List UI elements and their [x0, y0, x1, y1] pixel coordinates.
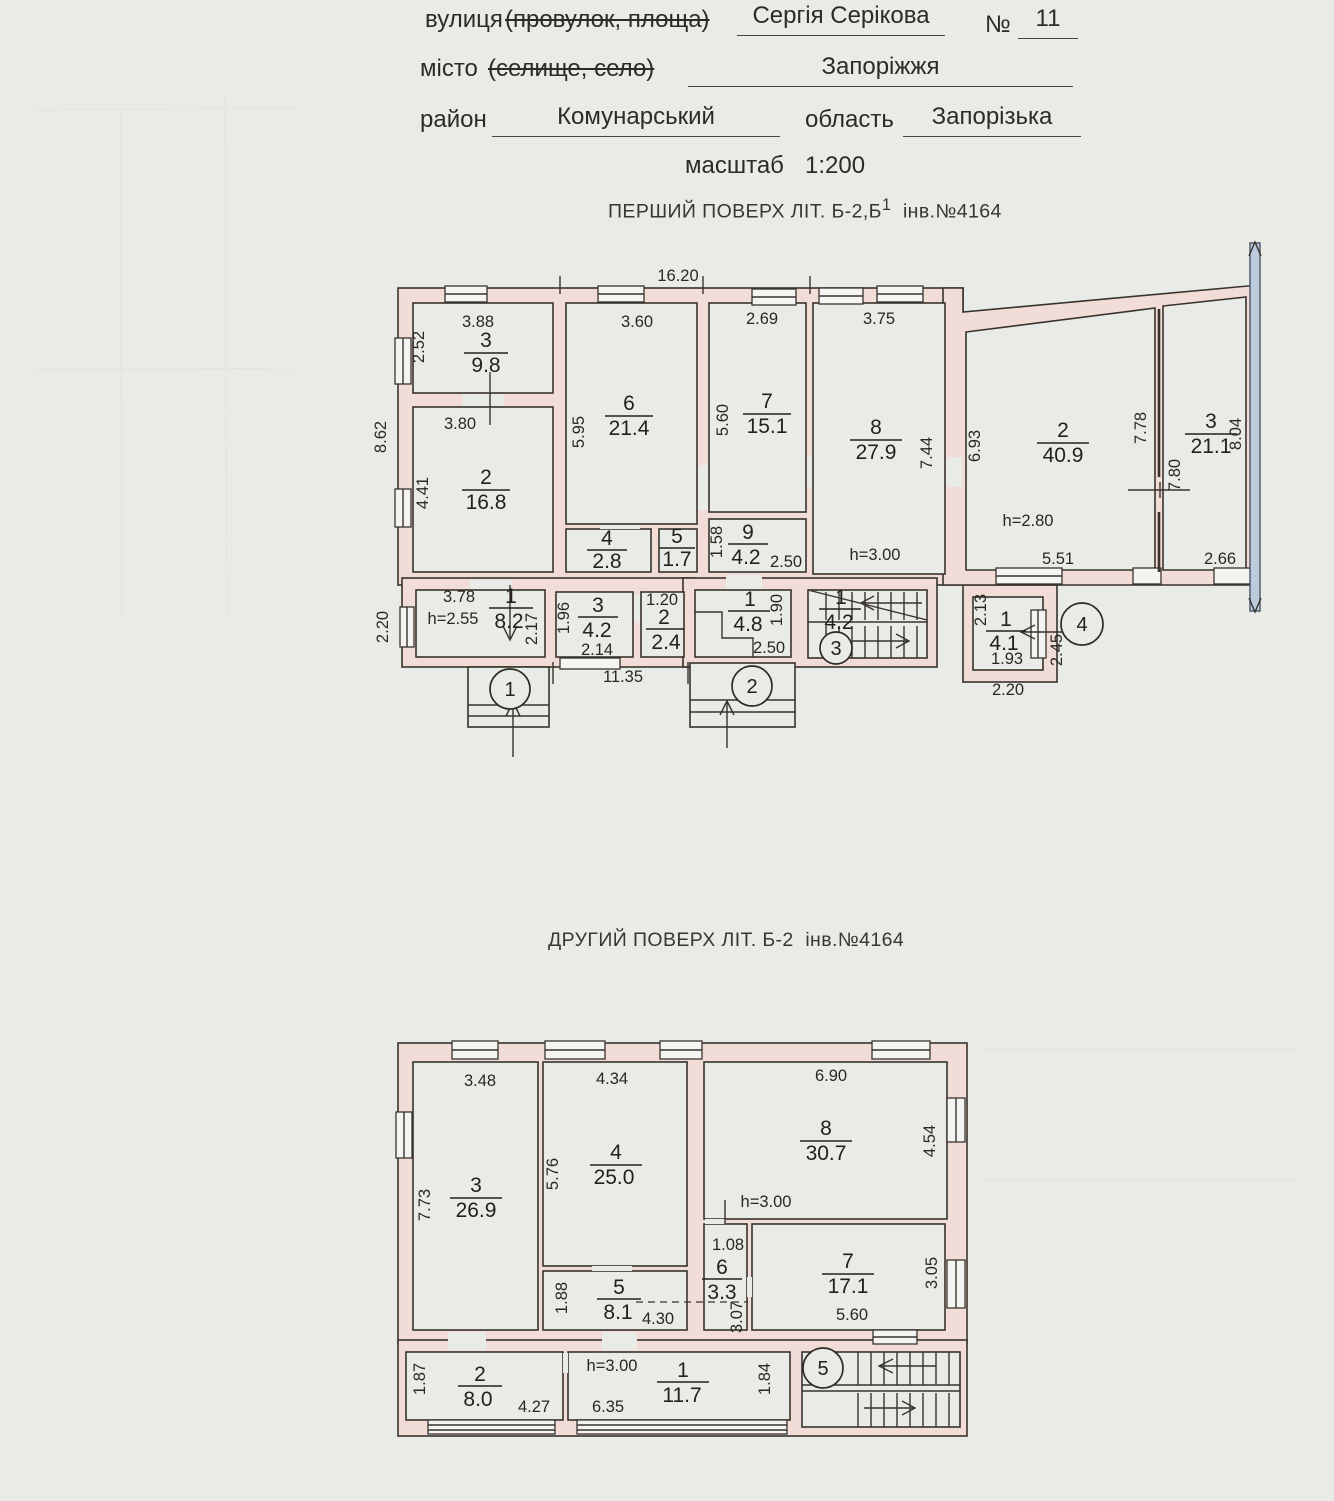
dim-label: 2.45: [1048, 634, 1066, 666]
room-number: 7: [842, 1250, 854, 1273]
floor1-plan: 1 2 3 4 3 9.8 2 16.8 6 21.4 4 2.8 5: [372, 242, 1261, 757]
room-number: 1: [677, 1359, 689, 1382]
room-number: 2: [658, 606, 670, 629]
room-number: 7: [761, 390, 773, 413]
scanned-floorplan-page: вулиця (провулок, площа) Сергія Серікова…: [0, 0, 1334, 1501]
room-area: 8.1: [603, 1301, 632, 1324]
dim-label: 5.60: [836, 1306, 868, 1324]
dim-label: 6.90: [815, 1067, 847, 1085]
room-area: 1.7: [662, 548, 691, 571]
room-area: 4.2: [582, 619, 611, 642]
height-label: h=2.80: [1003, 512, 1054, 530]
dim-label: 3.75: [863, 310, 895, 328]
room-number: 8: [820, 1117, 832, 1140]
dim-label: 11.35: [603, 668, 643, 686]
entrance-marker-1: 1: [504, 679, 515, 701]
height-label: h=2.55: [428, 610, 479, 628]
room-area: 17.1: [828, 1275, 869, 1298]
dim-label: 4.34: [596, 1070, 628, 1088]
dim-label: 3.05: [923, 1257, 941, 1289]
dim-label: 2.69: [746, 310, 778, 328]
room-area: 30.7: [806, 1142, 847, 1165]
room-number: 3: [592, 594, 604, 617]
room-area: 3.3: [707, 1281, 736, 1304]
dim-label: 3.60: [621, 313, 653, 331]
dim-label: 1.84: [756, 1363, 774, 1395]
dim-label: 2.50: [753, 639, 785, 657]
dim-label: 2.13: [972, 594, 990, 626]
dim-label: 1.90: [768, 594, 786, 626]
dim-label: 4.41: [414, 477, 432, 509]
room-area: 16.8: [466, 491, 507, 514]
dim-label: 2.50: [770, 553, 802, 571]
room-number: 2: [1057, 419, 1069, 442]
dim-label: 8.04: [1227, 418, 1245, 450]
dim-label: 5.95: [570, 416, 588, 448]
dim-label: 7.80: [1166, 459, 1184, 491]
dim-label: 7.78: [1132, 412, 1150, 444]
dim-label: 4.30: [642, 1310, 674, 1328]
dim-label: 7.44: [918, 437, 936, 469]
dim-label: 1.20: [646, 591, 678, 609]
room-number: 3: [470, 1174, 482, 1197]
room-number: 5: [671, 525, 683, 548]
dim-label: 2.14: [581, 641, 613, 659]
room-number: 1: [1000, 608, 1012, 631]
dim-label: 2.52: [410, 331, 428, 363]
room-number: 3: [480, 329, 492, 352]
room-number: 9: [742, 521, 754, 544]
height-label: h=3.00: [741, 1193, 792, 1211]
dim-label: 2.66: [1204, 550, 1236, 568]
dim-label: 6.35: [592, 1398, 624, 1416]
room-area: 26.9: [456, 1199, 497, 1222]
dim-label: 1.58: [708, 526, 726, 558]
entrance-marker-5: 5: [817, 1358, 828, 1380]
site-boundary-bar: [1249, 242, 1261, 612]
entrance-marker-4: 4: [1076, 614, 1087, 636]
entrance-marker-2: 2: [746, 676, 757, 698]
dim-label: 2.20: [374, 611, 392, 643]
room-number: 5: [613, 1276, 625, 1299]
dim-label: 5.60: [714, 404, 732, 436]
floor2-plan: 5 3 26.9 4 25.0 5 8.1 8 30.7 6 3.3 7: [396, 1041, 967, 1436]
room-number: 1: [505, 585, 517, 608]
dim-label: 2.17: [523, 613, 541, 645]
room-number: 4: [601, 527, 613, 550]
room-area: 40.9: [1043, 444, 1084, 467]
height-label: h=3.00: [587, 1357, 638, 1375]
room-number: 2: [480, 466, 492, 489]
dim-label: 6.93: [966, 430, 984, 462]
dim-label: 8.62: [372, 421, 390, 453]
room-area: 11.7: [662, 1384, 701, 1407]
room-area: 8.2: [494, 610, 523, 633]
room-number: 3: [1205, 410, 1217, 433]
dim-label: 4.54: [921, 1125, 939, 1157]
dim-label: 3.88: [462, 313, 494, 331]
room-number: 8: [870, 416, 882, 439]
room-number: 1: [744, 588, 756, 611]
dim-label: 2.20: [992, 681, 1024, 699]
room-area: 4.2: [824, 611, 853, 634]
room-area: 25.0: [594, 1166, 635, 1189]
dim-label: 5.51: [1042, 550, 1074, 568]
dim-label: 3.80: [444, 415, 476, 433]
dim-label: 4.27: [518, 1398, 550, 1416]
dim-label: 1.93: [991, 650, 1023, 668]
dim-label: 3.48: [464, 1072, 496, 1090]
room-area: 21.4: [609, 417, 650, 440]
dim-label: 5.76: [544, 1158, 562, 1190]
room-area: 2.4: [651, 631, 681, 654]
room-number: 4: [610, 1141, 622, 1164]
dim-label: 1.87: [411, 1363, 429, 1395]
entrance-marker-3: 3: [830, 638, 841, 660]
dim-label: 1.96: [555, 602, 573, 634]
dim-label: 3.78: [443, 588, 475, 606]
floor2-entrance-markers: 5: [803, 1348, 843, 1388]
height-label: h=3.00: [850, 546, 901, 564]
room-number: 1: [835, 586, 847, 609]
floorplan-drawing: 1 2 3 4 3 9.8 2 16.8 6 21.4 4 2.8 5: [0, 0, 1334, 1501]
room-area: 9.8: [471, 354, 500, 377]
dim-label: 3.07: [728, 1301, 746, 1333]
room-area: 8.0: [463, 1388, 492, 1411]
room-area: 21.1: [1191, 435, 1232, 458]
dim-label: 16.20: [657, 267, 698, 285]
room-area: 27.9: [856, 441, 897, 464]
room-area: 15.1: [747, 415, 788, 438]
room-number: 2: [474, 1363, 486, 1386]
dim-label: 1.08: [712, 1236, 744, 1254]
dim-label: 7.73: [416, 1189, 434, 1221]
room-area: 4.2: [731, 546, 760, 569]
room-area: 2.8: [592, 550, 621, 573]
room-number: 6: [716, 1256, 728, 1279]
dim-label: 1.88: [553, 1282, 571, 1314]
room-area: 4.8: [733, 613, 762, 636]
room-number: 6: [623, 392, 635, 415]
